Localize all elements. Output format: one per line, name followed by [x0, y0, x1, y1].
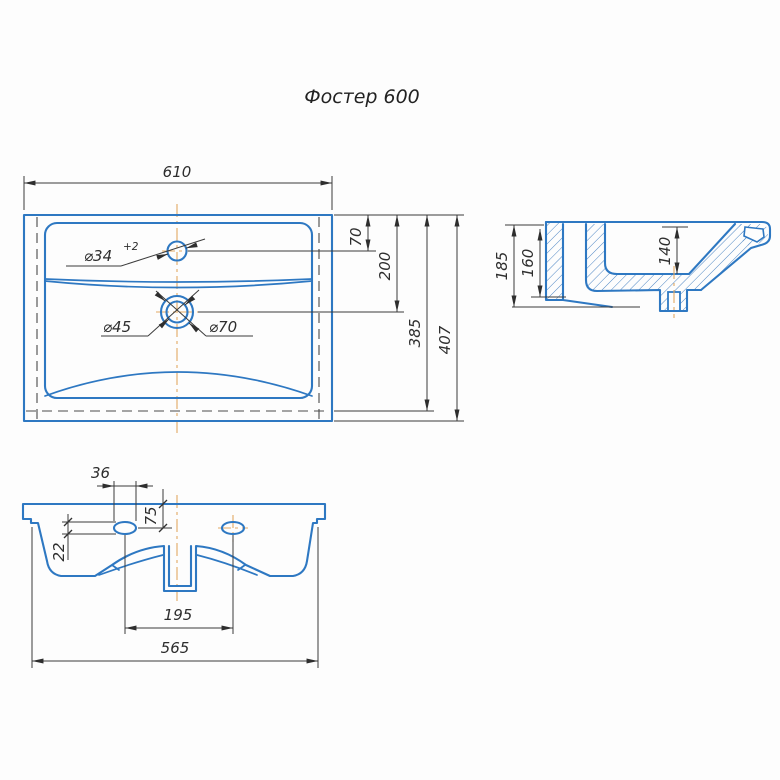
drawing-sheet: Фостер 600 610 70 200 [0, 0, 780, 780]
dim-hole-width-label: 36 [91, 464, 110, 482]
dim-faucet-offset-label: 70 [347, 227, 365, 246]
fixing-hole-left [114, 522, 136, 534]
basin-front-edge-upper [45, 279, 312, 282]
faucet-dia-label: ⌀34 [84, 247, 112, 265]
leader-arrow [186, 245, 197, 249]
drain-inner-dia-label: ⌀45 [103, 318, 131, 336]
dim-drain-span-label: 195 [164, 606, 193, 624]
dim-depth-label: 407 [436, 325, 454, 354]
side-view: 185 160 140 [493, 222, 770, 318]
technical-drawing: Фостер 600 610 70 200 [0, 0, 780, 780]
top-view-outline [24, 215, 332, 421]
drawing-title: Фостер 600 [304, 86, 420, 108]
bottom-view: 36 75 22 195 565 [23, 464, 325, 668]
dim-bowl-depth-label: 140 [656, 237, 674, 266]
dim-drain-offset-label: 200 [376, 252, 394, 281]
faucet-tol-label: +2 [123, 241, 139, 253]
section-back-slab-hatch [546, 222, 563, 300]
dim-total-height-label: 185 [493, 252, 511, 281]
basin-back-curve [45, 372, 312, 396]
top-view: 610 70 200 385 407 ⌀34 +2 ⌀45 ⌀70 [24, 163, 464, 433]
dim-inner-depth-label: 385 [406, 319, 424, 348]
dim-hole-offset-label: 75 [142, 506, 160, 525]
underside-arc-left [99, 555, 163, 575]
drain-outer-dia-label: ⌀70 [209, 318, 237, 336]
drain-box-inner [169, 546, 191, 586]
dim-hole-drop-label: 22 [50, 542, 68, 561]
dim-width-label: 610 [163, 163, 192, 181]
leader-line [156, 291, 206, 336]
leader-arrow [157, 254, 168, 258]
dim-base-width-label: 565 [161, 639, 190, 657]
dim-back-height-label: 160 [519, 249, 537, 278]
